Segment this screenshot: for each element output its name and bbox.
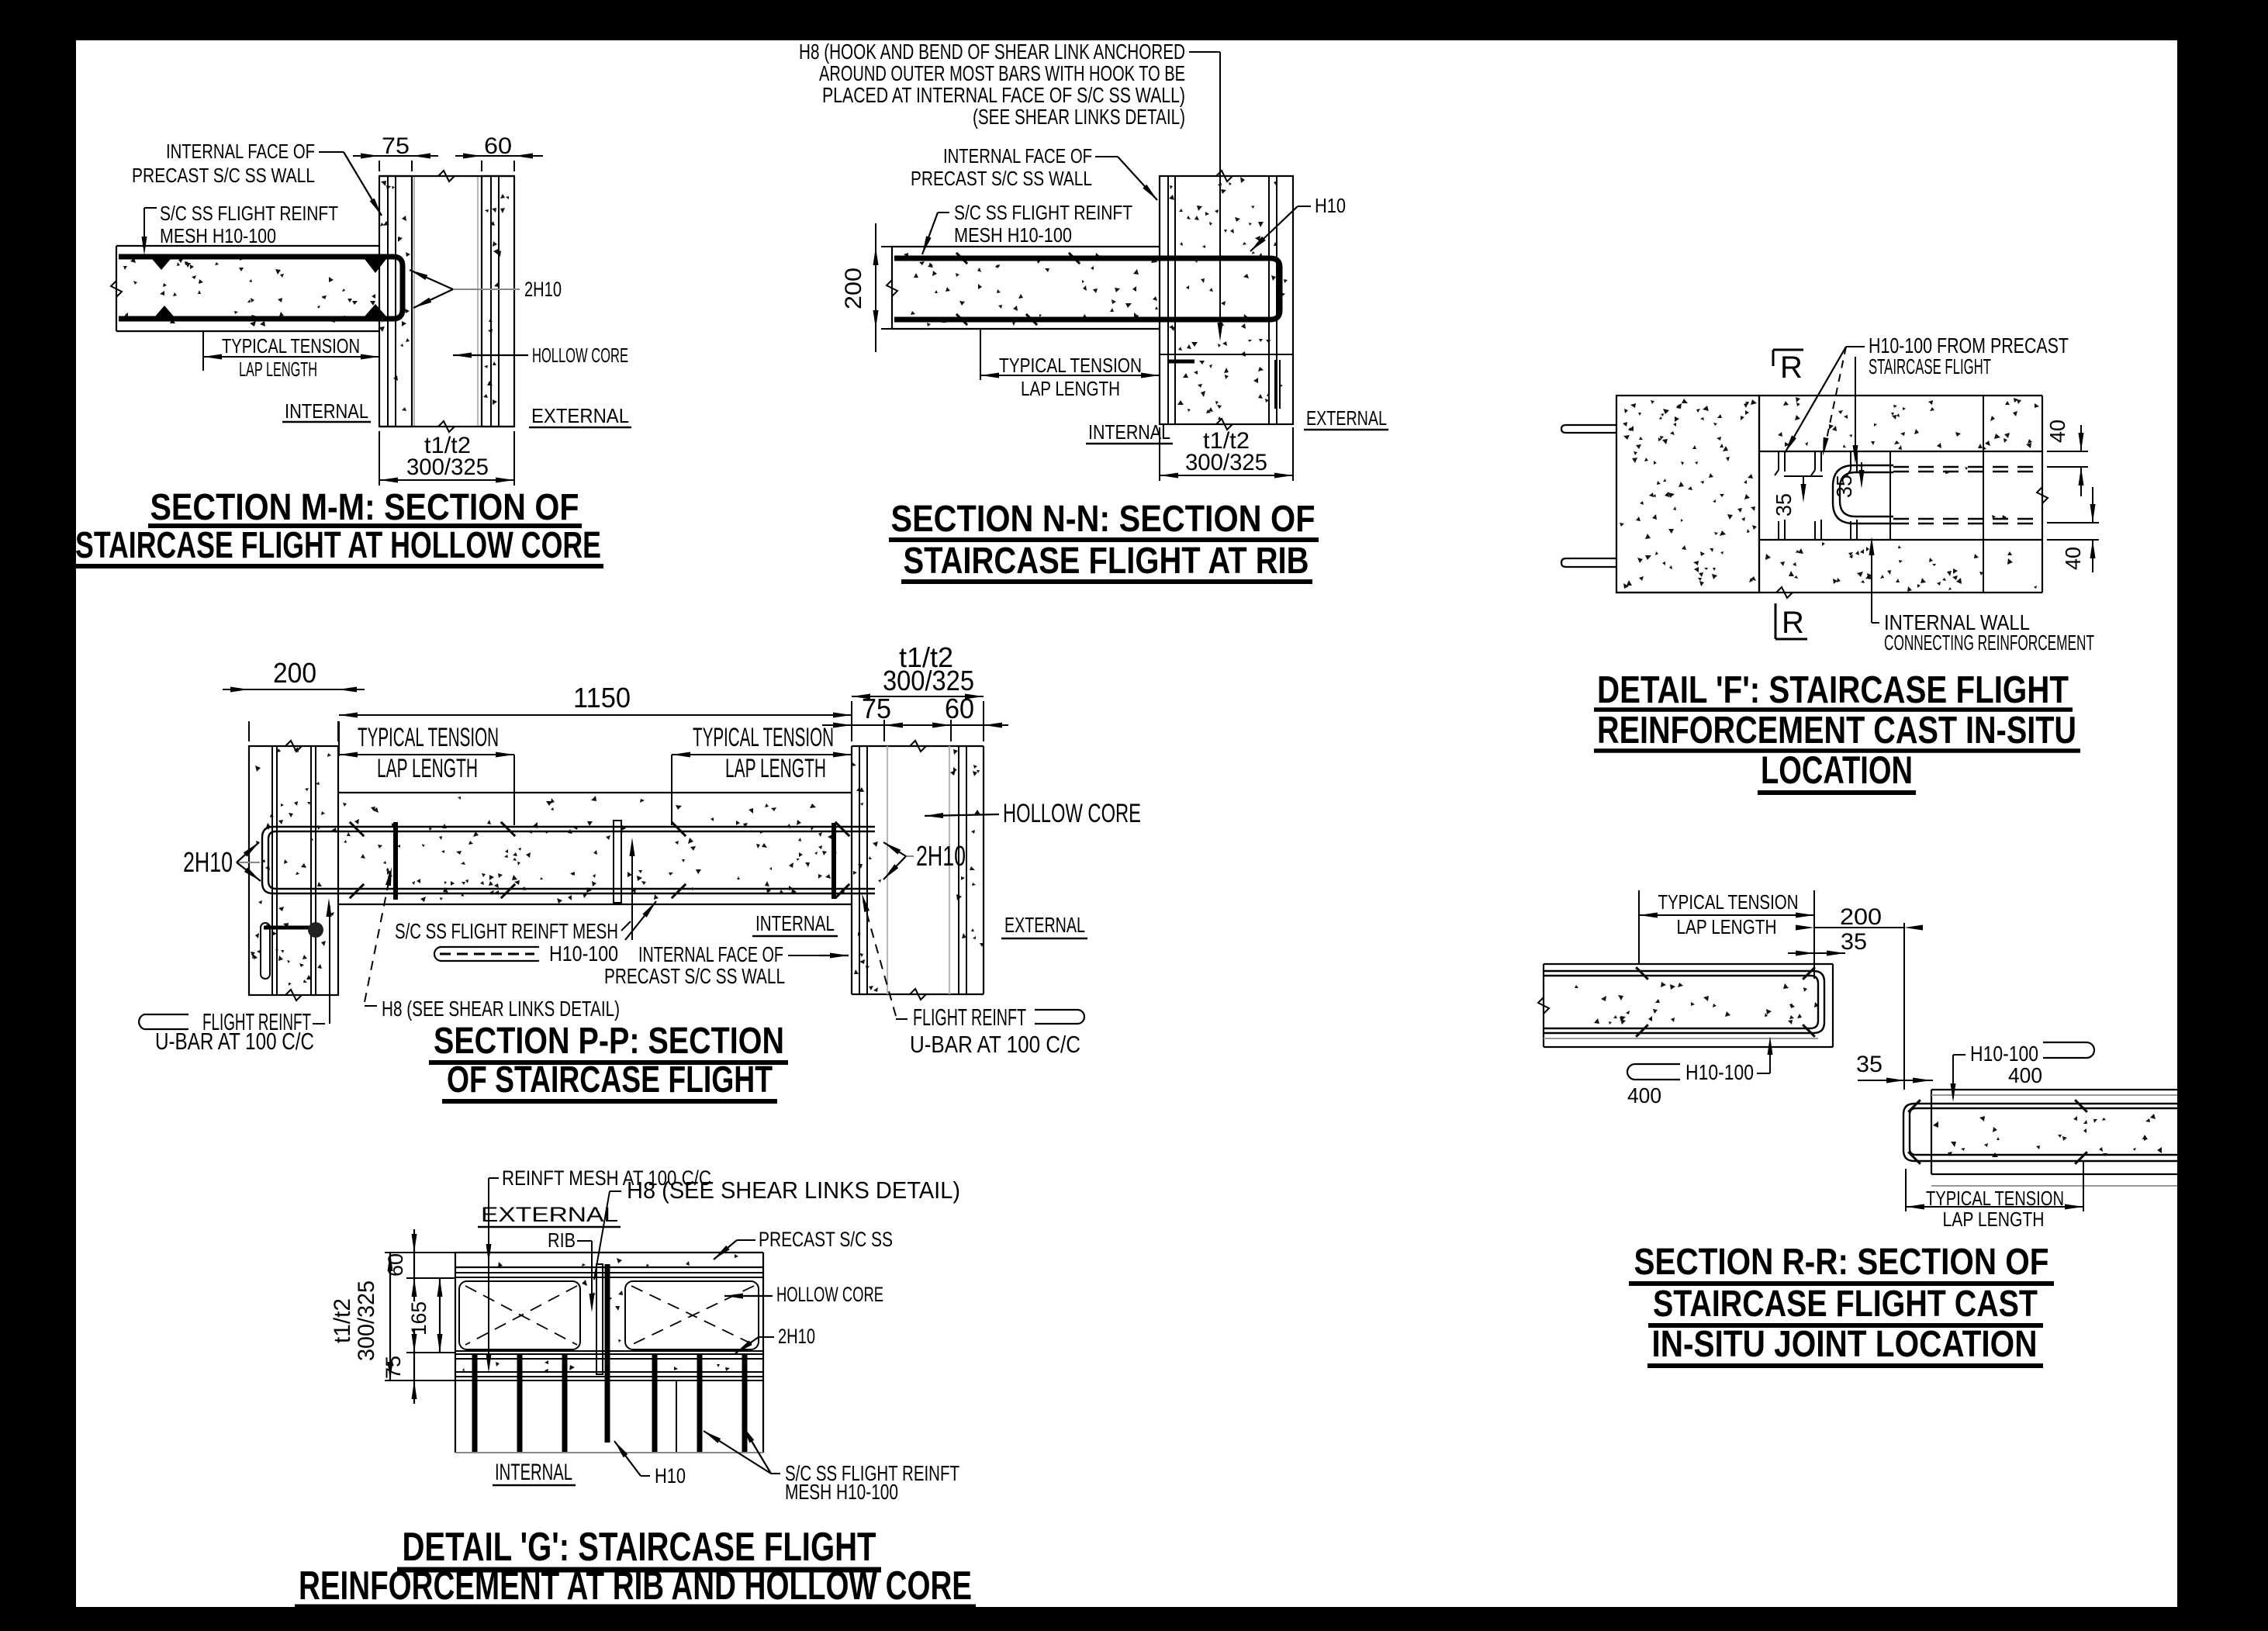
svg-text:FLIGHT REINFT: FLIGHT REINFT <box>913 1004 1026 1031</box>
svg-text:H10-100: H10-100 <box>1970 1042 2038 1066</box>
svg-text:200: 200 <box>273 657 316 689</box>
svg-text:75: 75 <box>862 693 891 724</box>
svg-text:400: 400 <box>1627 1083 1661 1107</box>
svg-text:35: 35 <box>1772 493 1796 517</box>
svg-text:H10: H10 <box>1315 194 1346 217</box>
svg-text:PRECAST S/C SS WALL: PRECAST S/C SS WALL <box>604 964 785 988</box>
svg-text:400: 400 <box>2008 1063 2042 1087</box>
svg-text:SECTION M-M: SECTION OF: SECTION M-M: SECTION OF <box>150 487 579 528</box>
svg-text:PRECAST S/C SS WALL: PRECAST S/C SS WALL <box>911 167 1092 190</box>
svg-text:75: 75 <box>382 1356 405 1379</box>
svg-text:INTERNAL FACE OF: INTERNAL FACE OF <box>166 140 315 163</box>
svg-text:2H10: 2H10 <box>183 846 233 878</box>
svg-text:TYPICAL TENSION: TYPICAL TENSION <box>999 354 1142 377</box>
svg-text:HOLLOW CORE: HOLLOW CORE <box>532 344 628 367</box>
svg-text:75: 75 <box>382 133 410 159</box>
svg-text:LAP LENGTH: LAP LENGTH <box>1677 915 1777 938</box>
svg-text:(SEE SHEAR LINKS DETAIL): (SEE SHEAR LINKS DETAIL) <box>973 105 1185 129</box>
svg-text:40: 40 <box>2045 420 2069 443</box>
svg-text:INTERNAL FACE OF: INTERNAL FACE OF <box>638 942 783 966</box>
svg-text:INTERNAL: INTERNAL <box>1088 420 1170 444</box>
svg-text:EXTERNAL: EXTERNAL <box>1004 913 1085 937</box>
svg-text:H10: H10 <box>655 1464 686 1488</box>
svg-text:40: 40 <box>2061 547 2085 570</box>
svg-text:TYPICAL TENSION: TYPICAL TENSION <box>1658 890 1799 914</box>
svg-text:EXTERNAL: EXTERNAL <box>1306 406 1387 430</box>
svg-text:STAIRCASE FLIGHT: STAIRCASE FLIGHT <box>1869 354 1991 378</box>
svg-text:MESH H10-100: MESH H10-100 <box>160 224 276 247</box>
svg-text:HOLLOW CORE: HOLLOW CORE <box>776 1283 883 1306</box>
svg-text:LAP LENGTH: LAP LENGTH <box>725 754 826 783</box>
svg-text:200: 200 <box>841 268 866 309</box>
svg-text:PLACED AT INTERNAL FACE OF S/C: PLACED AT INTERNAL FACE OF S/C SS WALL) <box>822 83 1185 107</box>
svg-text:DETAIL 'F': STAIRCASE FLIGHT: DETAIL 'F': STAIRCASE FLIGHT <box>1597 669 2069 711</box>
svg-text:INTERNAL: INTERNAL <box>495 1460 572 1485</box>
svg-text:MESH H10-100: MESH H10-100 <box>785 1480 898 1504</box>
svg-text:HOLLOW CORE: HOLLOW CORE <box>1003 799 1141 828</box>
svg-text:H8 (SEE SHEAR LINKS DETAIL): H8 (SEE SHEAR LINKS DETAIL) <box>382 997 620 1021</box>
svg-text:STAIRCASE FLIGHT AT RIB: STAIRCASE FLIGHT AT RIB <box>904 541 1309 582</box>
svg-text:SECTION N-N: SECTION OF: SECTION N-N: SECTION OF <box>891 499 1316 540</box>
svg-text:60: 60 <box>384 1253 407 1277</box>
svg-text:INTERNAL FACE OF: INTERNAL FACE OF <box>943 144 1092 168</box>
svg-text:EXTERNAL: EXTERNAL <box>531 404 629 427</box>
svg-text:t1/t2: t1/t2 <box>330 1298 355 1343</box>
svg-text:STAIRCASE FLIGHT CAST: STAIRCASE FLIGHT CAST <box>1653 1284 2038 1325</box>
svg-text:1150: 1150 <box>573 682 631 714</box>
svg-text:TYPICAL TENSION: TYPICAL TENSION <box>358 723 499 752</box>
svg-text:35: 35 <box>1832 475 1856 498</box>
svg-text:R: R <box>1782 606 1804 640</box>
svg-text:S/C SS FLIGHT REINFT: S/C SS FLIGHT REINFT <box>954 201 1132 224</box>
svg-text:SECTION R-R: SECTION OF: SECTION R-R: SECTION OF <box>1634 1242 2049 1283</box>
svg-text:165: 165 <box>407 1301 430 1336</box>
svg-text:S/C SS FLIGHT REINFT: S/C SS FLIGHT REINFT <box>160 202 338 225</box>
svg-text:INTERNAL: INTERNAL <box>285 399 368 423</box>
svg-text:EXTERNAL: EXTERNAL <box>481 1203 618 1226</box>
svg-text:H10-100: H10-100 <box>549 942 618 966</box>
svg-text:OF STAIRCASE FLIGHT: OF STAIRCASE FLIGHT <box>447 1059 773 1101</box>
svg-text:INTERNAL: INTERNAL <box>755 911 835 935</box>
svg-text:2H10: 2H10 <box>778 1325 815 1348</box>
svg-text:CONNECTING REINFORCEMENT: CONNECTING REINFORCEMENT <box>1884 631 2094 655</box>
svg-text:PRECAST S/C SS: PRECAST S/C SS <box>759 1228 893 1251</box>
svg-text:R: R <box>1780 351 1803 385</box>
svg-text:TYPICAL TENSION: TYPICAL TENSION <box>222 334 360 358</box>
svg-text:MESH H10-100: MESH H10-100 <box>954 223 1072 247</box>
svg-text:H10-100: H10-100 <box>1685 1060 1754 1084</box>
svg-text:200: 200 <box>1840 904 1882 930</box>
svg-text:AROUND OUTER MOST BARS WITH HO: AROUND OUTER MOST BARS WITH HOOK TO BE <box>819 61 1185 85</box>
svg-text:300/325: 300/325 <box>1185 450 1267 475</box>
svg-text:REINFORCEMENT CAST IN-SITU: REINFORCEMENT CAST IN-SITU <box>1597 710 2076 752</box>
svg-text:RIB: RIB <box>548 1228 576 1252</box>
svg-text:LOCATION: LOCATION <box>1761 748 1913 792</box>
svg-text:300/325: 300/325 <box>354 1280 379 1361</box>
svg-text:IN-SITU JOINT LOCATION: IN-SITU JOINT LOCATION <box>1652 1324 2038 1365</box>
svg-text:35: 35 <box>1856 1052 1883 1077</box>
svg-text:REINFORCEMENT AT RIB AND HOLLO: REINFORCEMENT AT RIB AND HOLLOW CORE <box>299 1564 972 1609</box>
svg-text:LAP LENGTH: LAP LENGTH <box>1021 377 1120 400</box>
svg-text:H8 (HOOK AND BEND OF SHEAR LIN: H8 (HOOK AND BEND OF SHEAR LINK ANCHORED <box>799 40 1185 64</box>
svg-text:S/C SS FLIGHT REINFT MESH: S/C SS FLIGHT REINFT MESH <box>395 919 618 943</box>
svg-text:2H10: 2H10 <box>916 840 966 872</box>
svg-text:U-BAR AT 100 C/C: U-BAR AT 100 C/C <box>155 1028 314 1055</box>
svg-text:2H10: 2H10 <box>524 278 562 301</box>
svg-text:U-BAR AT 100 C/C: U-BAR AT 100 C/C <box>910 1031 1080 1058</box>
svg-text:LAP LENGTH: LAP LENGTH <box>1943 1208 2045 1231</box>
svg-text:STAIRCASE FLIGHT AT HOLLOW COR: STAIRCASE FLIGHT AT HOLLOW CORE <box>75 525 601 566</box>
svg-text:H8 (SEE SHEAR LINKS DETAIL): H8 (SEE SHEAR LINKS DETAIL) <box>627 1177 960 1204</box>
svg-text:PRECAST S/C SS WALL: PRECAST S/C SS WALL <box>132 164 315 187</box>
svg-text:LAP LENGTH: LAP LENGTH <box>377 754 478 783</box>
svg-text:60: 60 <box>945 693 974 724</box>
svg-text:TYPICAL TENSION: TYPICAL TENSION <box>693 723 834 752</box>
svg-text:60: 60 <box>484 133 512 159</box>
svg-text:LAP LENGTH: LAP LENGTH <box>239 358 317 381</box>
svg-text:35: 35 <box>1841 929 1867 955</box>
svg-text:300/325: 300/325 <box>883 665 974 696</box>
svg-text:SECTION P-P: SECTION: SECTION P-P: SECTION <box>434 1021 784 1062</box>
svg-text:300/325: 300/325 <box>406 454 489 480</box>
